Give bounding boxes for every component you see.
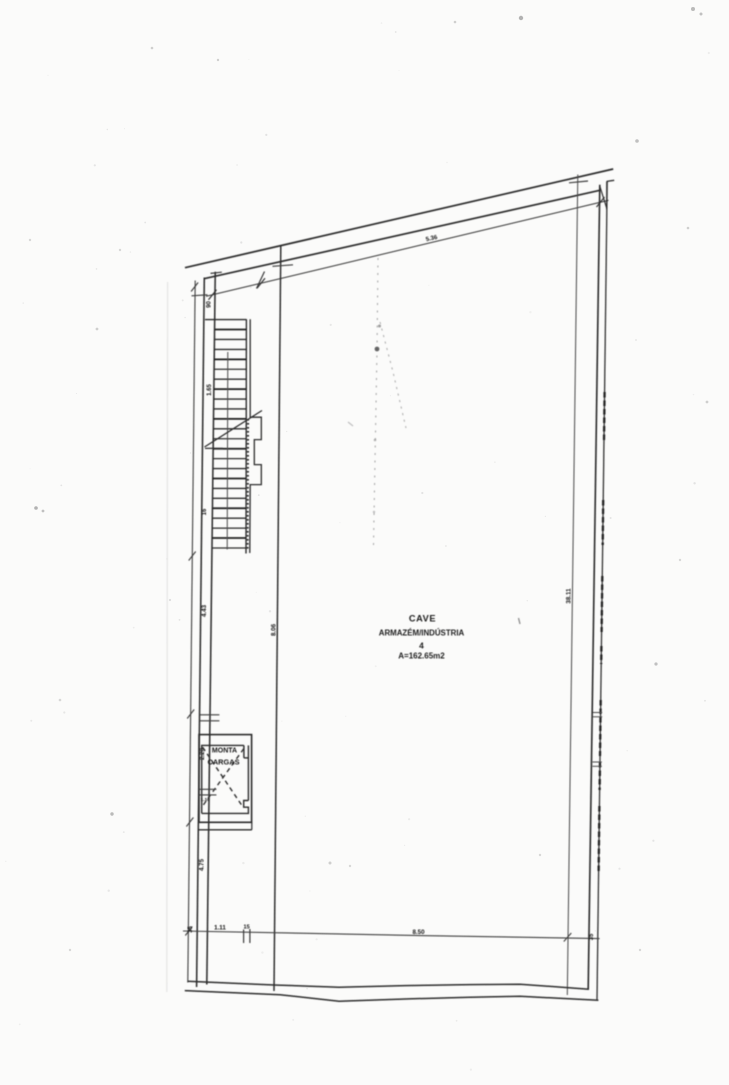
svg-text:CARGAS: CARGAS: [207, 758, 239, 767]
svg-text:ARMAZÉM/INDÚSTRIA: ARMAZÉM/INDÚSTRIA: [379, 629, 465, 638]
svg-text:16: 16: [202, 508, 208, 515]
svg-text:15: 15: [243, 925, 249, 931]
svg-text:2.20: 2.20: [199, 747, 206, 760]
svg-text:35: 35: [589, 933, 595, 940]
svg-text:4: 4: [419, 641, 424, 651]
svg-text:MONTA: MONTA: [212, 748, 237, 755]
svg-text:1.10: 1.10: [201, 797, 211, 803]
svg-text:38.11: 38.11: [566, 588, 573, 604]
svg-text:35: 35: [188, 926, 194, 933]
svg-text:CAVE: CAVE: [409, 614, 436, 624]
svg-text:4.75: 4.75: [199, 858, 206, 871]
svg-text:8.50: 8.50: [412, 929, 425, 936]
svg-text:90: 90: [207, 301, 213, 308]
svg-text:8.06: 8.06: [271, 623, 278, 636]
svg-text:4.43: 4.43: [201, 604, 208, 617]
svg-text:A=162.65m2: A=162.65m2: [398, 652, 445, 661]
svg-text:1.11: 1.11: [214, 925, 226, 932]
svg-text:1.65: 1.65: [207, 384, 213, 396]
